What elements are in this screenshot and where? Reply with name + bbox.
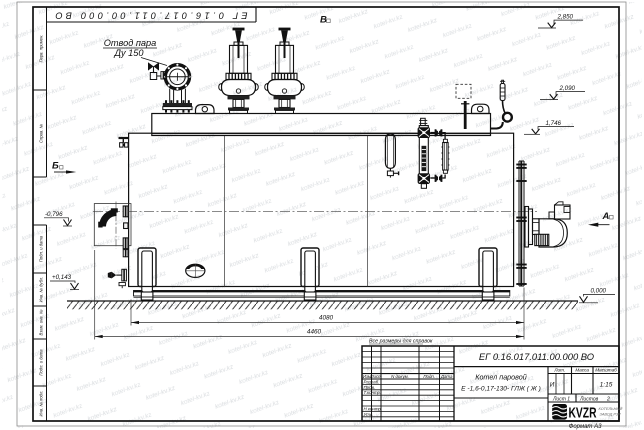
svg-text:Справ. №: Справ. №: [39, 124, 44, 143]
svg-text:Дата: Дата: [440, 374, 453, 379]
svg-text:Е -1,6-0,17-130- ГЛЖ ( Ж ): Е -1,6-0,17-130- ГЛЖ ( Ж ): [461, 386, 541, 393]
svg-text:2,850: 2,850: [557, 14, 574, 21]
svg-text:Перв. примен.: Перв. примен.: [39, 35, 44, 63]
svg-text:Б: Б: [52, 161, 59, 172]
svg-text:Лист: Лист: [370, 374, 383, 379]
svg-text:В: В: [320, 15, 327, 26]
svg-text:Лит.: Лит.: [553, 367, 565, 372]
svg-text:Утв.: Утв.: [364, 412, 374, 417]
svg-text:Подп.: Подп.: [423, 374, 435, 379]
svg-text:Н.контр.: Н.контр.: [364, 406, 383, 411]
svg-text:Листов: Листов: [579, 397, 599, 403]
svg-text:Подп. и дата: Подп. и дата: [39, 349, 44, 376]
svg-text:И: И: [550, 382, 555, 389]
svg-text:Масштаб: Масштаб: [595, 367, 617, 372]
svg-text:Т.контр.: Т.контр.: [364, 390, 382, 395]
svg-text:+0,143: +0,143: [52, 274, 72, 281]
svg-text:Котел паровой: Котел паровой: [475, 373, 527, 382]
svg-text:Взам. инв. №: Взам. инв. №: [39, 309, 44, 335]
svg-text:0,000: 0,000: [591, 288, 607, 295]
svg-text:2,090: 2,090: [559, 85, 576, 92]
svg-text:1,746: 1,746: [546, 120, 562, 127]
svg-text:4460: 4460: [307, 329, 322, 336]
svg-text:КОТЕЛЬНЫЙ: КОТЕЛЬНЫЙ: [599, 407, 623, 411]
svg-text:2: 2: [606, 397, 610, 403]
svg-text:Масса: Масса: [575, 367, 589, 372]
svg-text:4080: 4080: [319, 315, 334, 322]
svg-text:Отвод пара: Отвод пара: [104, 38, 157, 48]
svg-text:Инв. № подл.: Инв. № подл.: [39, 391, 44, 417]
svg-text:Подп. и дата: Подп. и дата: [39, 235, 44, 262]
svg-text:Ду 150: Ду 150: [113, 48, 144, 58]
svg-text:Пров.: Пров.: [364, 385, 376, 390]
svg-text:Разраб.: Разраб.: [364, 379, 380, 384]
svg-text:А: А: [602, 211, 610, 222]
svg-text:1:15: 1:15: [600, 382, 613, 389]
svg-text:ЗАВОД РЗР: ЗАВОД РЗР: [600, 413, 622, 417]
svg-text:Формат А3: Формат А3: [569, 424, 602, 430]
svg-text:N докум.: N докум.: [391, 374, 409, 379]
svg-text:ЕГ 0.16.017.011.00.000 ВО: ЕГ 0.16.017.011.00.000 ВО: [479, 351, 595, 362]
svg-text:KVZR: KVZR: [569, 404, 597, 421]
svg-text:-0,796: -0,796: [45, 211, 63, 218]
svg-text:Инв. № дубл.: Инв. № дубл.: [39, 277, 44, 303]
svg-text:Лист 1: Лист 1: [552, 397, 570, 403]
